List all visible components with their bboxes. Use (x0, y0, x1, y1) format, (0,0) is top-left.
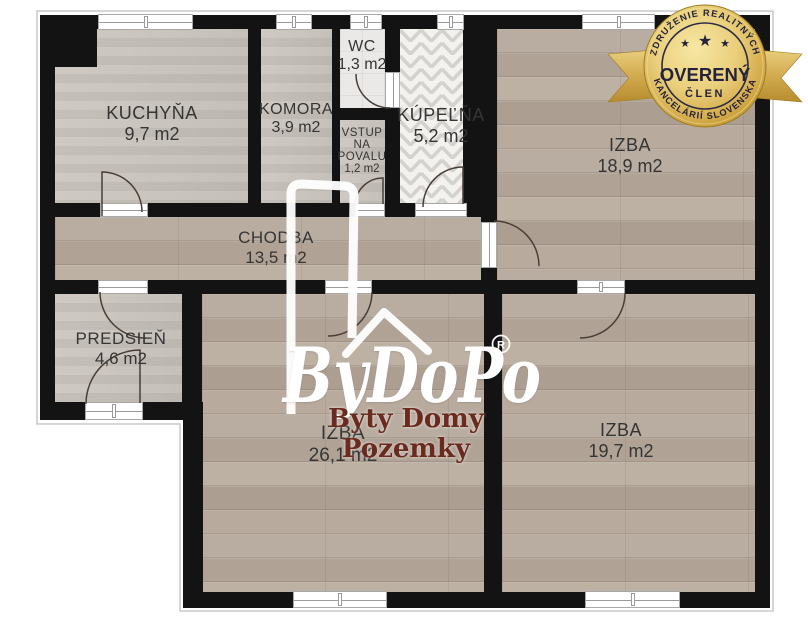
window-kitchen (98, 14, 193, 30)
wall-wc-attic-divider (332, 108, 400, 120)
label-wc: WC 1,3 m2 (338, 38, 387, 74)
room-name: IZBA (588, 420, 653, 441)
label-kitchen: KUCHYŇA 9,7 m2 (106, 103, 198, 145)
room-area: 18,9 m2 (597, 156, 662, 177)
wall-middle-long (40, 280, 770, 294)
door-apartment-entrance (85, 402, 143, 420)
room-name: WC (338, 38, 387, 56)
room-name: KOMORA (259, 101, 333, 119)
door-bathroom (415, 203, 467, 217)
door-attic-access (355, 203, 385, 217)
room-area: 3,9 m2 (259, 119, 333, 137)
room-name: PREDSIEŇ (76, 329, 167, 349)
room-area: 5,2 m2 (397, 126, 485, 147)
room-name: IZBA (597, 135, 662, 156)
room-name-line: NA (338, 139, 387, 151)
label-pantry: KOMORA 3,9 m2 (259, 101, 333, 137)
wall-entryhall-right (182, 294, 202, 402)
floorplan-image: KUCHYŇA 9,7 m2 KOMORA 3,9 m2 WC 1,3 m2 V… (0, 0, 808, 619)
wall-bottom (183, 592, 770, 608)
room-area: 19,7 m2 (588, 441, 653, 462)
wall-left (40, 15, 55, 420)
room-name-line: POVALU (338, 151, 387, 163)
window-pantry (276, 14, 312, 30)
room-area: 13,5 m2 (238, 248, 314, 268)
room-name: CHODBA (238, 228, 314, 248)
badge-member: ČLEN (685, 87, 725, 100)
window-wc (350, 14, 382, 30)
watermark-tagline: Byty Domy Pozemky (268, 404, 544, 464)
room-area: 1,3 m2 (338, 56, 387, 74)
badge-star-left: ★ (680, 37, 690, 50)
wall-bottomleft-vertical (183, 402, 203, 608)
label-attic-access: VSTUP NA POVALU 1,2 m2 (338, 127, 387, 175)
verified-member-badge: ZDRUŽENIE REALITNÝCH KANCELÁRIÍ SLOVENSK… (602, 0, 808, 134)
door-room2 (325, 280, 372, 294)
label-room3: IZBA 19,7 m2 (588, 420, 653, 462)
door-entry-hall-top (98, 280, 148, 294)
room-name-line: VSTUP (338, 127, 387, 139)
window-room3 (585, 591, 680, 608)
door-room3 (577, 280, 625, 294)
window-room2 (293, 591, 387, 608)
room-area: 4,6 m2 (76, 349, 167, 369)
badge-title: OVERENÝ (660, 64, 751, 85)
room-area: 1,2 m2 (338, 163, 387, 175)
label-bathroom: KÚPEĽŇA 5,2 m2 (397, 105, 485, 147)
room-name: KÚPEĽŇA (397, 105, 485, 126)
label-entry-hall: PREDSIEŇ 4,6 m2 (76, 329, 167, 369)
label-room1: IZBA 18,9 m2 (597, 135, 662, 177)
door-room1 (481, 222, 497, 268)
door-wc (385, 72, 400, 108)
watermark-brand-text: ByDoPo (283, 338, 541, 414)
badge-star-center: ★ (698, 31, 712, 50)
label-hallway: CHODBA 13,5 m2 (238, 228, 314, 268)
badge-star-right: ★ (720, 37, 730, 50)
window-bathroom (437, 14, 464, 30)
room-area: 9,7 m2 (106, 124, 198, 145)
wall-chimney-block (55, 29, 97, 67)
door-kitchen (100, 203, 148, 217)
room-name: KUCHYŇA (106, 103, 198, 124)
